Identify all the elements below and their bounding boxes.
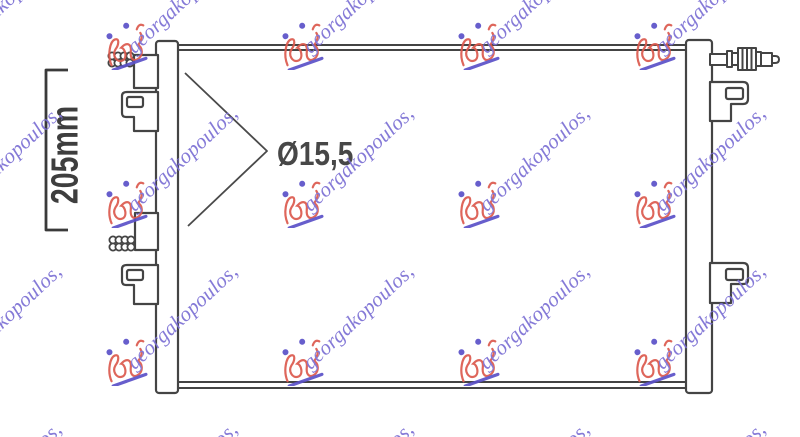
diameter-chevron [185, 73, 267, 226]
dimension-label: 205mm [45, 106, 88, 204]
right-tank [686, 40, 712, 393]
radiator-diagram [0, 0, 800, 437]
top-right-threaded-fitting [710, 48, 779, 70]
parts-diagram-screen: 205mm Ø15,5 georgakopoulos,georgakopoulo… [0, 0, 800, 437]
core-bottom-edge [178, 382, 687, 388]
core-top-edge [178, 45, 687, 50]
top-left-holed-bracket [122, 92, 158, 131]
mid-left-mount-bracket [135, 213, 158, 250]
left-tank [156, 41, 178, 393]
top-left-mount-bracket [134, 55, 158, 88]
top-left-pipe-connector [108, 52, 133, 66]
top-right-holed-bracket [710, 82, 748, 121]
diameter-label: Ø15,5 [277, 135, 353, 173]
bottom-right-holed-bracket [710, 263, 748, 303]
mid-left-pipe-connector [109, 236, 134, 250]
mid-left-holed-bracket [122, 265, 158, 304]
